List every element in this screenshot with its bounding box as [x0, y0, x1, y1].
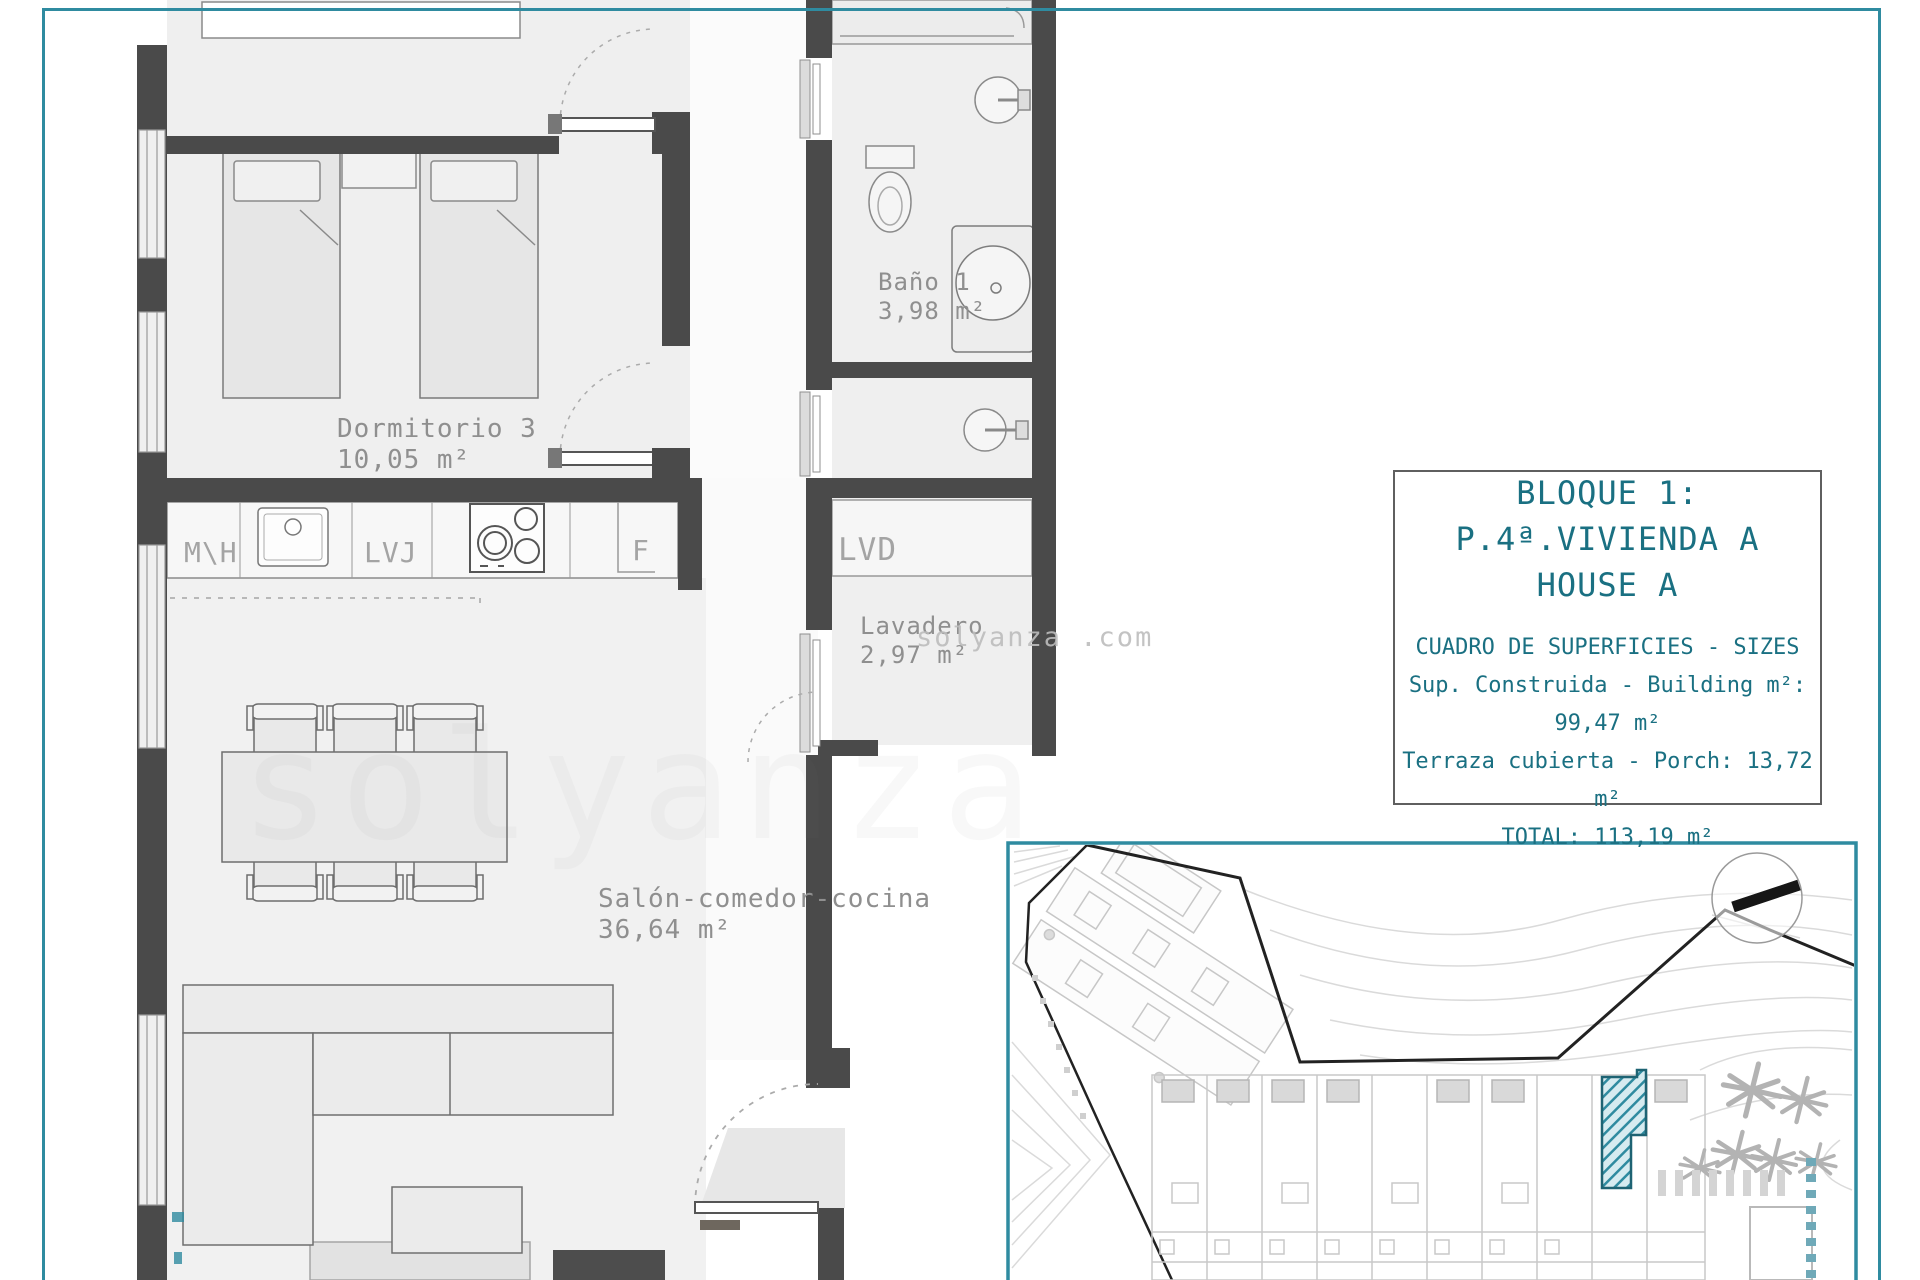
room-area: 36,64 m²	[598, 915, 931, 946]
kitchen-label-f: F	[632, 534, 650, 568]
room-name: Baño 1	[878, 268, 986, 297]
room-name: Salón-comedor-cocina	[598, 884, 931, 915]
watermark-text: solyanza .com	[916, 622, 1153, 653]
title-line-3: HOUSE A	[1395, 566, 1820, 604]
laundry-label-lvd: LVD	[838, 532, 897, 569]
room-name: Dormitorio 3	[337, 414, 537, 445]
room-label-bano: Baño 1 3,98 m²	[878, 268, 986, 326]
pool	[1750, 1207, 1812, 1280]
cut-furniture	[553, 1250, 665, 1280]
sizes-table: CUADRO DE SUPERFICIES - SIZES Sup. Const…	[1393, 605, 1822, 805]
room-area: 10,05 m²	[337, 445, 537, 476]
sizes-row-total: TOTAL: 113,19 m²	[1395, 819, 1820, 857]
watermark-ghost: solyanza	[240, 700, 1042, 874]
sizes-row-building: Sup. Construida - Building m²: 99,47 m²	[1395, 667, 1820, 743]
north-marker	[1712, 853, 1802, 943]
floor-plan-page: Dormitorio 3 10,05 m² Baño 1 3,98 m² Lav…	[0, 0, 1920, 1280]
kitchen-label-lvj: LVJ	[364, 536, 418, 570]
kitchen-label-mh: M\H	[184, 536, 238, 570]
title-line-1: BLOQUE 1:	[1395, 474, 1820, 512]
room-area: 3,98 m²	[878, 297, 986, 326]
site-plan-inset	[1001, 817, 1856, 1280]
sizes-title: CUADRO DE SUPERFICIES - SIZES	[1395, 629, 1820, 667]
title-block: BLOQUE 1: P.4ª.VIVIENDA A HOUSE A	[1393, 470, 1822, 607]
sizes-row-porch: Terraza cubierta - Porch: 13,72 m²	[1395, 743, 1820, 819]
room-label-dormitorio: Dormitorio 3 10,05 m²	[337, 414, 537, 476]
room-label-salon: Salón-comedor-cocina 36,64 m²	[598, 884, 931, 946]
title-line-2: P.4ª.VIVIENDA A	[1395, 520, 1820, 558]
